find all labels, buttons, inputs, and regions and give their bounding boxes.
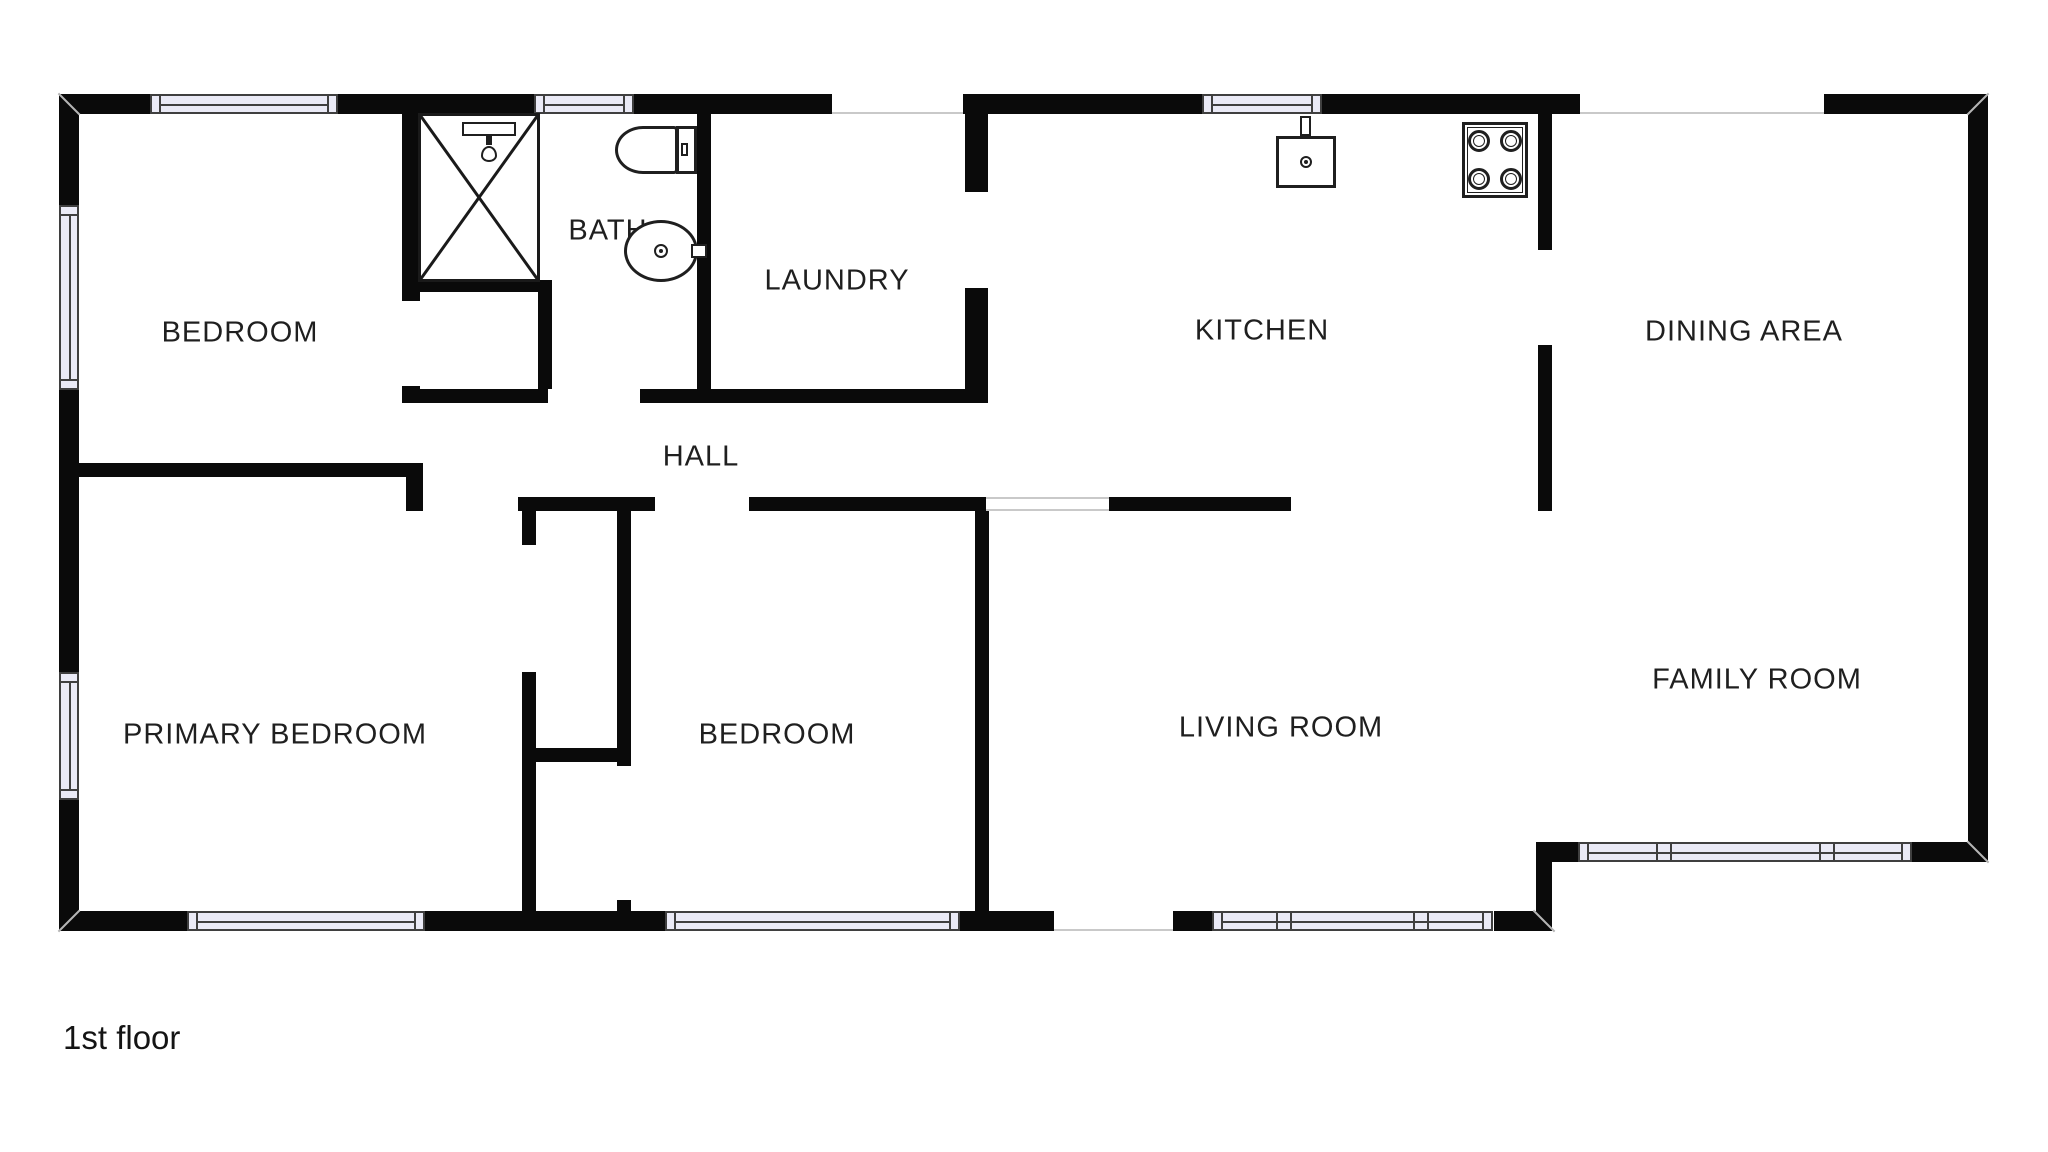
room-label-kitchen: KITCHEN <box>1195 315 1329 348</box>
window-divider <box>676 921 949 923</box>
shower-head-stem <box>486 136 492 145</box>
shower-icon <box>418 113 540 282</box>
window-divider <box>1833 844 1835 860</box>
wall <box>538 292 552 389</box>
wall <box>963 94 1202 114</box>
kitchen-sink-tap <box>1300 116 1311 136</box>
wall <box>965 288 988 403</box>
window-divider <box>1213 104 1311 106</box>
wall <box>406 463 423 511</box>
window-divider <box>1276 913 1278 929</box>
shower-head-icon <box>462 122 516 136</box>
stove-burner-ring <box>1473 173 1485 185</box>
window-divider <box>1901 844 1903 860</box>
floor-plan: 1st floor BEDROOMBATHLAUNDRYKITCHENDININ… <box>0 0 2048 1152</box>
window-divider <box>1427 913 1429 929</box>
wall <box>1538 114 1552 250</box>
wall <box>1109 497 1291 511</box>
wall <box>749 497 986 511</box>
bathroom-sink-tap <box>691 244 707 258</box>
window-divider <box>623 96 625 112</box>
wall <box>697 114 711 403</box>
window-divider <box>198 921 414 923</box>
wall <box>59 911 187 931</box>
kitchen-sink-drain-dot <box>1304 160 1308 164</box>
window-divider <box>1413 913 1415 929</box>
wall <box>522 748 631 762</box>
toilet-icon <box>615 126 678 174</box>
floor-title: 1st floor <box>63 1019 180 1057</box>
window-divider <box>161 104 327 106</box>
bathroom-sink-drain-dot <box>659 249 663 253</box>
window <box>187 911 425 931</box>
window-divider <box>1656 844 1658 860</box>
doorway-opening <box>1580 94 1824 114</box>
wall <box>1322 94 1580 114</box>
room-label-family: FAMILY ROOM <box>1652 664 1862 697</box>
stove-burner-ring <box>1505 135 1517 147</box>
window-divider <box>1482 913 1484 929</box>
window-divider <box>1223 921 1482 923</box>
stove-burner-ring <box>1505 173 1517 185</box>
window-divider <box>1311 96 1313 112</box>
doorway-opening <box>986 497 1109 511</box>
wall <box>59 390 79 672</box>
room-label-primary-bedroom: PRIMARY BEDROOM <box>123 719 427 752</box>
room-label-hall: HALL <box>663 441 740 474</box>
opening-line <box>986 497 1109 499</box>
window-divider <box>949 913 951 929</box>
window <box>1578 842 1912 862</box>
doorway-opening <box>1054 911 1173 931</box>
room-label-dining: DINING AREA <box>1645 316 1843 349</box>
toilet-handle <box>681 143 688 156</box>
wall <box>522 511 536 545</box>
wall <box>1968 94 1988 862</box>
wall <box>1824 94 1988 114</box>
wall <box>1173 911 1212 931</box>
window-divider <box>1819 844 1821 860</box>
wall <box>617 900 631 931</box>
window <box>59 205 79 390</box>
wall <box>402 389 548 403</box>
opening-line <box>986 509 1109 511</box>
wall <box>1538 345 1552 511</box>
room-label-laundry: LAUNDRY <box>764 265 909 298</box>
window <box>150 94 338 114</box>
wall <box>338 94 534 114</box>
wall <box>522 672 536 911</box>
wall <box>1552 842 1578 862</box>
opening-line <box>832 112 963 114</box>
opening-line <box>1580 112 1824 114</box>
window-divider <box>61 379 77 381</box>
room-label-bedroom-top: BEDROOM <box>162 317 319 350</box>
opening-line <box>1054 929 1173 931</box>
window <box>665 911 960 931</box>
window-divider <box>1670 844 1672 860</box>
shower-head-drop <box>481 146 497 162</box>
window-divider <box>545 104 623 106</box>
stove-burner-ring <box>1473 135 1485 147</box>
window-divider <box>69 683 71 789</box>
wall <box>518 497 655 511</box>
window <box>59 672 79 800</box>
window-divider <box>1290 913 1292 929</box>
room-label-bedroom-mid: BEDROOM <box>699 719 856 752</box>
wall <box>960 911 1054 931</box>
room-label-living: LIVING ROOM <box>1179 712 1383 745</box>
window <box>1212 911 1493 931</box>
window-divider <box>1589 852 1901 854</box>
wall <box>975 511 989 911</box>
wall <box>617 511 631 766</box>
window <box>534 94 634 114</box>
window <box>1202 94 1322 114</box>
window-divider <box>61 789 77 791</box>
wall <box>634 94 832 114</box>
doorway-opening <box>832 94 963 114</box>
wall <box>965 114 988 192</box>
wall <box>59 463 423 477</box>
window-divider <box>69 216 71 379</box>
window-divider <box>414 913 416 929</box>
window-divider <box>327 96 329 112</box>
wall <box>640 389 986 403</box>
